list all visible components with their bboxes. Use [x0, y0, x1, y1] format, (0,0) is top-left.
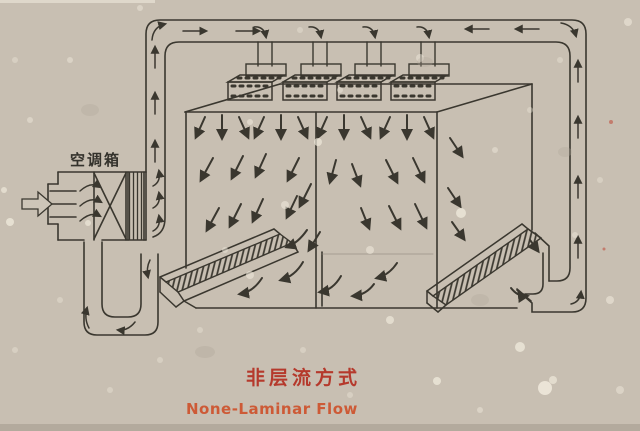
- scanned-figure: 空调箱: [0, 0, 640, 431]
- ac-unit-label: 空调箱: [70, 151, 121, 169]
- caption-title-en: None-Laminar Flow: [186, 400, 358, 418]
- caption-title-zh: 非层流方式: [246, 366, 361, 389]
- non-laminar-flow-diagram: 空调箱: [0, 0, 640, 431]
- ac-filter-strip: [129, 172, 143, 240]
